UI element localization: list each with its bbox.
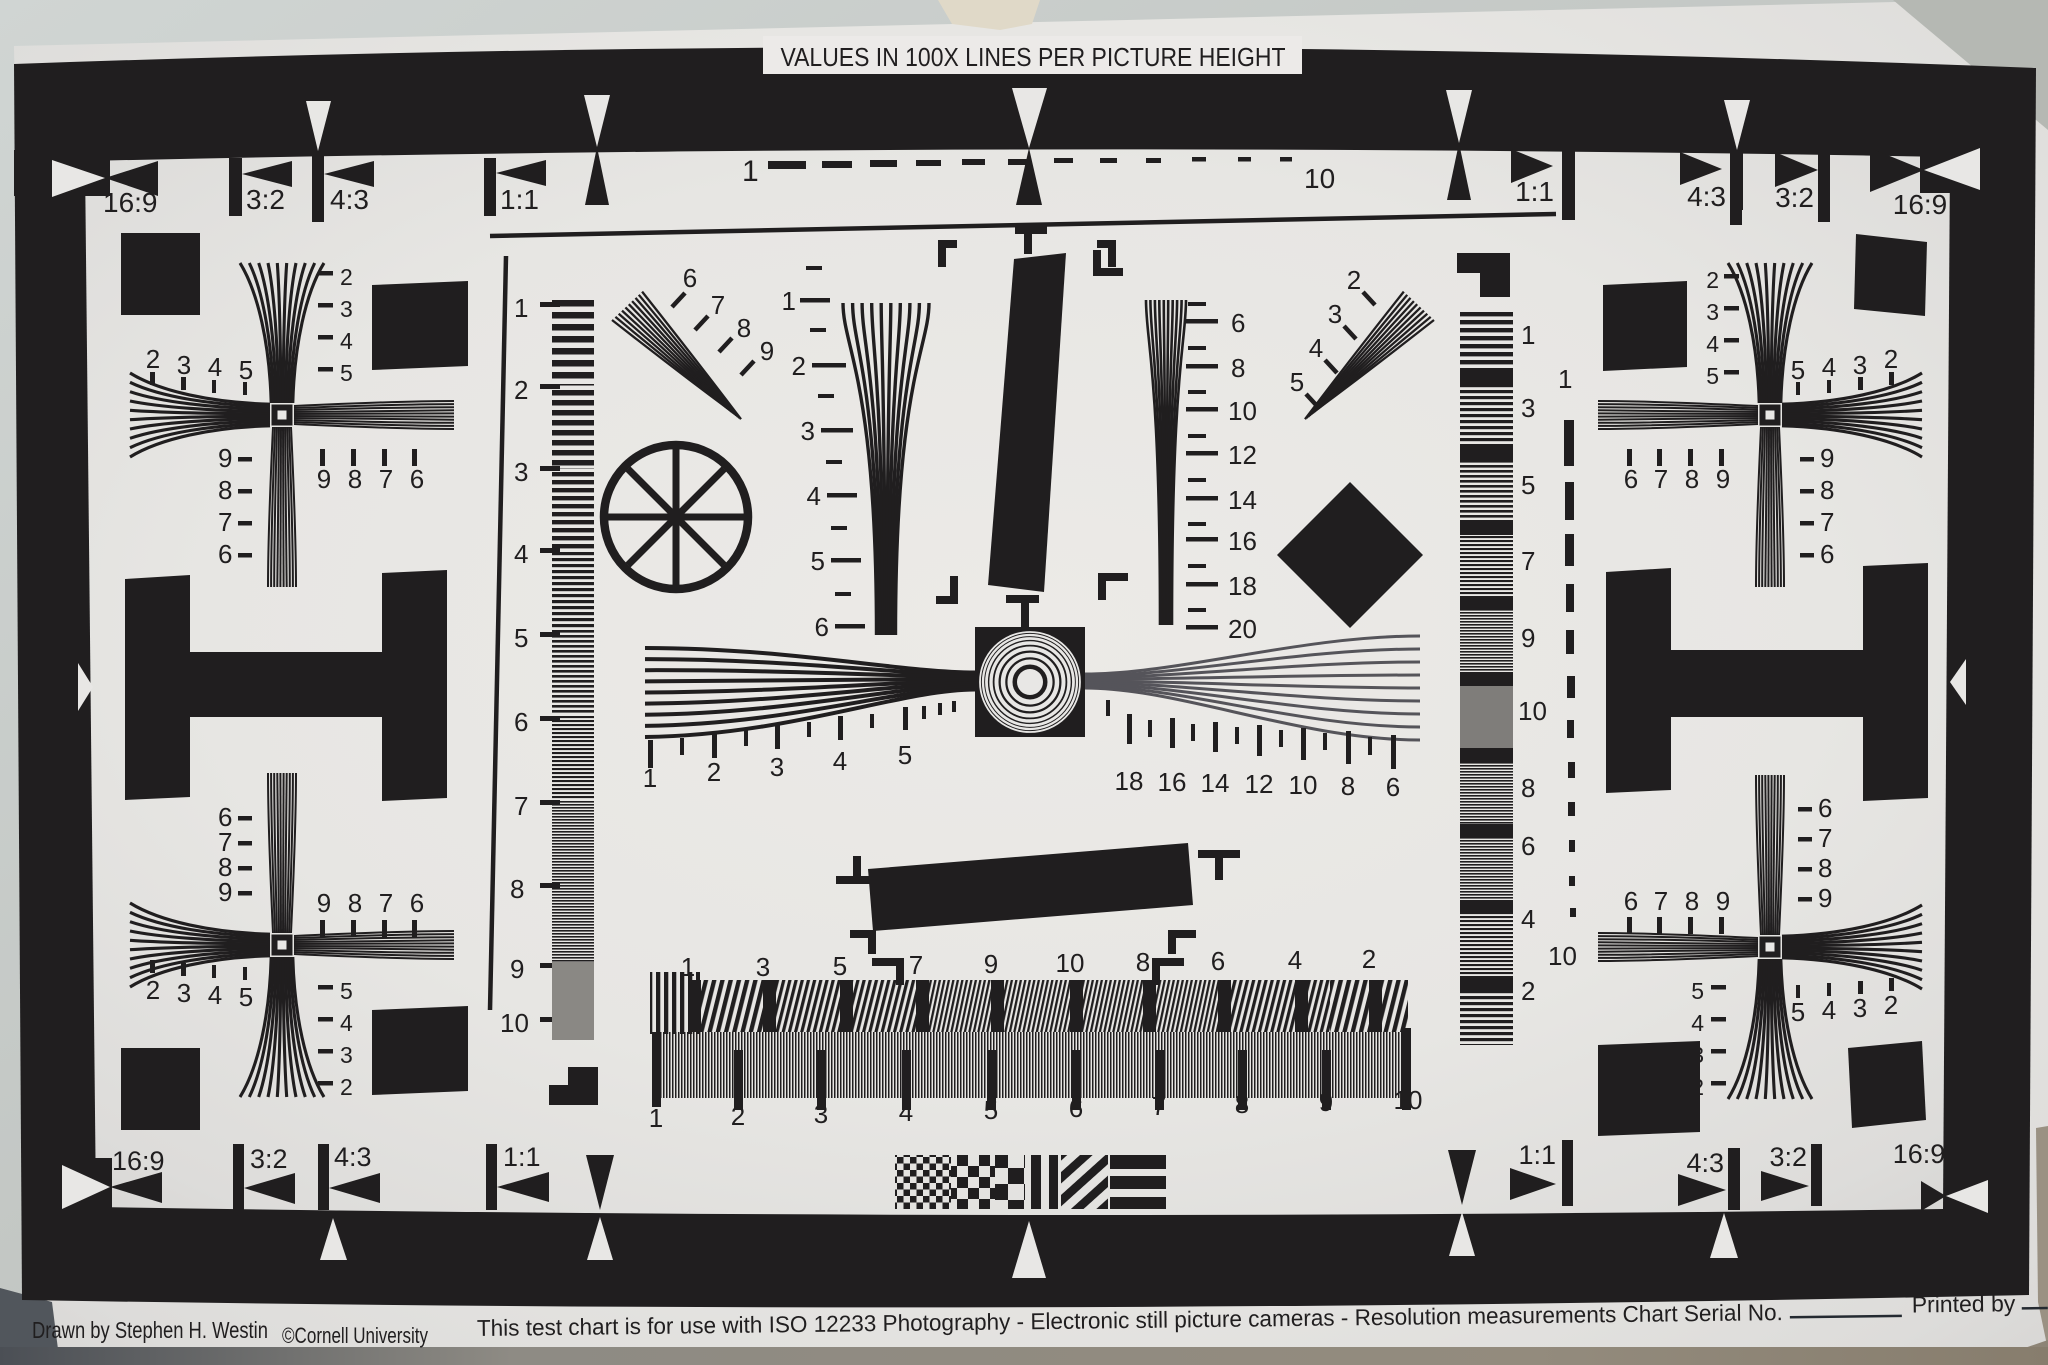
svg-text:4: 4 xyxy=(1691,1010,1704,1036)
svg-text:6: 6 xyxy=(1820,539,1834,569)
svg-text:4: 4 xyxy=(833,746,847,776)
svg-text:3: 3 xyxy=(340,296,353,322)
svg-text:Drawn by Stephen H. Westin: Drawn by Stephen H. Westin xyxy=(32,1317,268,1343)
svg-text:3: 3 xyxy=(1853,993,1867,1023)
svg-text:4: 4 xyxy=(208,980,222,1010)
svg-text:6: 6 xyxy=(1069,1093,1083,1123)
svg-text:6: 6 xyxy=(1818,793,1832,823)
svg-text:3:2: 3:2 xyxy=(1769,1142,1807,1172)
svg-text:5: 5 xyxy=(239,355,253,385)
svg-text:8: 8 xyxy=(348,464,362,494)
svg-text:9: 9 xyxy=(760,336,774,366)
svg-text:9: 9 xyxy=(984,949,998,979)
svg-text:9: 9 xyxy=(1319,1087,1333,1117)
svg-text:6: 6 xyxy=(683,263,697,293)
svg-text:2: 2 xyxy=(1706,267,1719,293)
svg-text:5: 5 xyxy=(811,546,825,576)
svg-text:10: 10 xyxy=(1394,1085,1423,1115)
svg-text:3: 3 xyxy=(340,1042,353,1068)
svg-text:4: 4 xyxy=(899,1097,913,1127)
svg-text:VALUES IN 100X LINES PER PICTU: VALUES IN 100X LINES PER PICTURE HEIGHT xyxy=(781,42,1286,72)
svg-text:7: 7 xyxy=(909,950,923,980)
svg-text:2: 2 xyxy=(731,1101,745,1131)
svg-text:6: 6 xyxy=(1231,308,1245,338)
svg-text:8: 8 xyxy=(1820,475,1834,505)
svg-text:7: 7 xyxy=(1521,546,1535,576)
svg-text:2: 2 xyxy=(792,351,806,381)
svg-text:6: 6 xyxy=(1624,886,1638,916)
svg-text:6: 6 xyxy=(1521,831,1535,861)
svg-text:3: 3 xyxy=(756,952,770,982)
svg-text:2: 2 xyxy=(340,264,353,290)
svg-text:3:2: 3:2 xyxy=(246,184,285,215)
svg-text:4:3: 4:3 xyxy=(1686,1148,1724,1178)
svg-text:5: 5 xyxy=(1691,978,1704,1004)
svg-text:3: 3 xyxy=(177,350,191,380)
svg-text:7: 7 xyxy=(379,888,393,918)
svg-text:4: 4 xyxy=(1822,352,1836,382)
svg-text:10: 10 xyxy=(1548,941,1577,971)
svg-text:2: 2 xyxy=(146,975,160,1005)
svg-text:20: 20 xyxy=(1228,614,1257,644)
svg-text:9: 9 xyxy=(218,877,232,907)
svg-text:2: 2 xyxy=(340,1074,353,1100)
svg-text:9: 9 xyxy=(1820,443,1834,473)
svg-text:3:2: 3:2 xyxy=(1775,182,1814,213)
svg-text:7: 7 xyxy=(514,791,528,821)
svg-text:7: 7 xyxy=(711,290,725,320)
svg-text:8: 8 xyxy=(1136,947,1150,977)
svg-text:16: 16 xyxy=(1158,767,1187,797)
svg-text:1: 1 xyxy=(649,1103,663,1133)
svg-text:10: 10 xyxy=(1518,696,1547,726)
svg-text:18: 18 xyxy=(1115,766,1144,796)
svg-text:1:1: 1:1 xyxy=(1515,176,1554,207)
svg-text:4: 4 xyxy=(1288,945,1302,975)
svg-text:5: 5 xyxy=(514,623,528,653)
svg-text:9: 9 xyxy=(1521,623,1535,653)
svg-text:8: 8 xyxy=(1521,773,1535,803)
svg-text:1:1: 1:1 xyxy=(1518,1140,1556,1170)
svg-text:7: 7 xyxy=(218,507,232,537)
svg-text:8: 8 xyxy=(218,475,232,505)
svg-text:18: 18 xyxy=(1228,571,1257,601)
svg-text:1: 1 xyxy=(643,763,657,793)
svg-text:3: 3 xyxy=(1706,299,1719,325)
svg-text:9: 9 xyxy=(317,888,331,918)
svg-text:8: 8 xyxy=(348,888,362,918)
svg-text:1: 1 xyxy=(742,155,759,188)
svg-text:16:9: 16:9 xyxy=(112,1146,165,1176)
svg-text:4: 4 xyxy=(514,539,528,569)
svg-text:7: 7 xyxy=(1820,507,1834,537)
svg-text:10: 10 xyxy=(1228,396,1257,426)
svg-text:10: 10 xyxy=(1304,163,1335,194)
svg-text:6: 6 xyxy=(815,612,829,642)
svg-text:6: 6 xyxy=(1624,464,1638,494)
svg-text:7: 7 xyxy=(1818,823,1832,853)
svg-text:2: 2 xyxy=(707,757,721,787)
svg-text:5: 5 xyxy=(833,951,847,981)
svg-text:16:9: 16:9 xyxy=(103,187,158,218)
svg-text:12: 12 xyxy=(1245,769,1274,799)
svg-text:©Cornell University: ©Cornell University xyxy=(282,1323,428,1348)
svg-text:16: 16 xyxy=(1228,526,1257,556)
svg-text:5: 5 xyxy=(340,360,353,386)
svg-text:1:1: 1:1 xyxy=(500,184,539,215)
svg-text:9: 9 xyxy=(1716,464,1730,494)
svg-text:8: 8 xyxy=(1235,1089,1249,1119)
svg-text:4:3: 4:3 xyxy=(1687,181,1726,212)
svg-text:4: 4 xyxy=(1822,995,1836,1025)
svg-text:5: 5 xyxy=(340,978,353,1004)
svg-text:6: 6 xyxy=(514,707,528,737)
svg-text:9: 9 xyxy=(218,443,232,473)
svg-text:5: 5 xyxy=(1290,367,1304,397)
svg-text:3: 3 xyxy=(1853,350,1867,380)
svg-text:2: 2 xyxy=(1362,944,1376,974)
svg-text:4: 4 xyxy=(807,481,821,511)
svg-text:5: 5 xyxy=(239,982,253,1012)
svg-text:1: 1 xyxy=(1521,320,1535,350)
svg-text:3: 3 xyxy=(1328,299,1342,329)
svg-text:7: 7 xyxy=(1654,464,1668,494)
svg-text:10: 10 xyxy=(500,1008,529,1038)
svg-text:8: 8 xyxy=(510,874,524,904)
svg-text:Printed by: Printed by xyxy=(1912,1290,2016,1317)
svg-text:16:9: 16:9 xyxy=(1893,1139,1946,1169)
svg-text:4: 4 xyxy=(1706,331,1719,357)
svg-text:8: 8 xyxy=(1818,853,1832,883)
svg-text:1:1: 1:1 xyxy=(503,1142,541,1172)
svg-text:12: 12 xyxy=(1228,440,1257,470)
svg-text:5: 5 xyxy=(984,1095,998,1125)
svg-text:7: 7 xyxy=(1152,1091,1166,1121)
svg-text:4:3: 4:3 xyxy=(330,184,369,215)
svg-text:2: 2 xyxy=(514,375,528,405)
svg-text:5: 5 xyxy=(1706,363,1719,389)
svg-text:16:9: 16:9 xyxy=(1893,189,1948,220)
svg-text:2: 2 xyxy=(146,344,160,374)
svg-text:3: 3 xyxy=(514,457,528,487)
svg-text:8: 8 xyxy=(737,313,751,343)
svg-text:3: 3 xyxy=(814,1099,828,1129)
svg-text:2: 2 xyxy=(1884,344,1898,374)
svg-text:8: 8 xyxy=(1341,771,1355,801)
svg-text:4: 4 xyxy=(208,352,222,382)
svg-text:1: 1 xyxy=(514,293,528,323)
svg-text:2: 2 xyxy=(1521,976,1535,1006)
svg-text:3:2: 3:2 xyxy=(250,1144,288,1174)
svg-text:10: 10 xyxy=(1056,948,1085,978)
svg-text:9: 9 xyxy=(1716,886,1730,916)
svg-text:2: 2 xyxy=(1347,265,1361,295)
svg-text:5: 5 xyxy=(1791,997,1805,1027)
svg-text:4: 4 xyxy=(1521,904,1535,934)
svg-text:8: 8 xyxy=(1685,464,1699,494)
svg-text:4: 4 xyxy=(340,328,353,354)
svg-text:6: 6 xyxy=(218,539,232,569)
svg-text:3: 3 xyxy=(801,416,815,446)
svg-text:3: 3 xyxy=(770,752,784,782)
svg-text:5: 5 xyxy=(1791,355,1805,385)
svg-text:4: 4 xyxy=(340,1010,353,1036)
svg-text:6: 6 xyxy=(1211,946,1225,976)
svg-text:9: 9 xyxy=(510,954,524,984)
svg-text:6: 6 xyxy=(1386,772,1400,802)
svg-text:3: 3 xyxy=(1521,393,1535,423)
svg-text:1: 1 xyxy=(782,286,796,316)
svg-text:8: 8 xyxy=(1685,886,1699,916)
svg-text:9: 9 xyxy=(1818,883,1832,913)
svg-text:9: 9 xyxy=(317,464,331,494)
svg-text:14: 14 xyxy=(1201,768,1230,798)
svg-text:5: 5 xyxy=(1521,470,1535,500)
svg-text:7: 7 xyxy=(1654,886,1668,916)
svg-text:6: 6 xyxy=(410,888,424,918)
svg-text:7: 7 xyxy=(379,464,393,494)
svg-text:8: 8 xyxy=(1231,353,1245,383)
svg-text:1: 1 xyxy=(1558,364,1572,394)
svg-text:6: 6 xyxy=(410,464,424,494)
svg-text:4:3: 4:3 xyxy=(334,1142,372,1172)
svg-text:5: 5 xyxy=(898,740,912,770)
svg-text:14: 14 xyxy=(1228,485,1257,515)
svg-text:4: 4 xyxy=(1309,333,1323,363)
svg-text:3: 3 xyxy=(177,978,191,1008)
svg-text:10: 10 xyxy=(1289,770,1318,800)
svg-text:2: 2 xyxy=(1884,990,1898,1020)
